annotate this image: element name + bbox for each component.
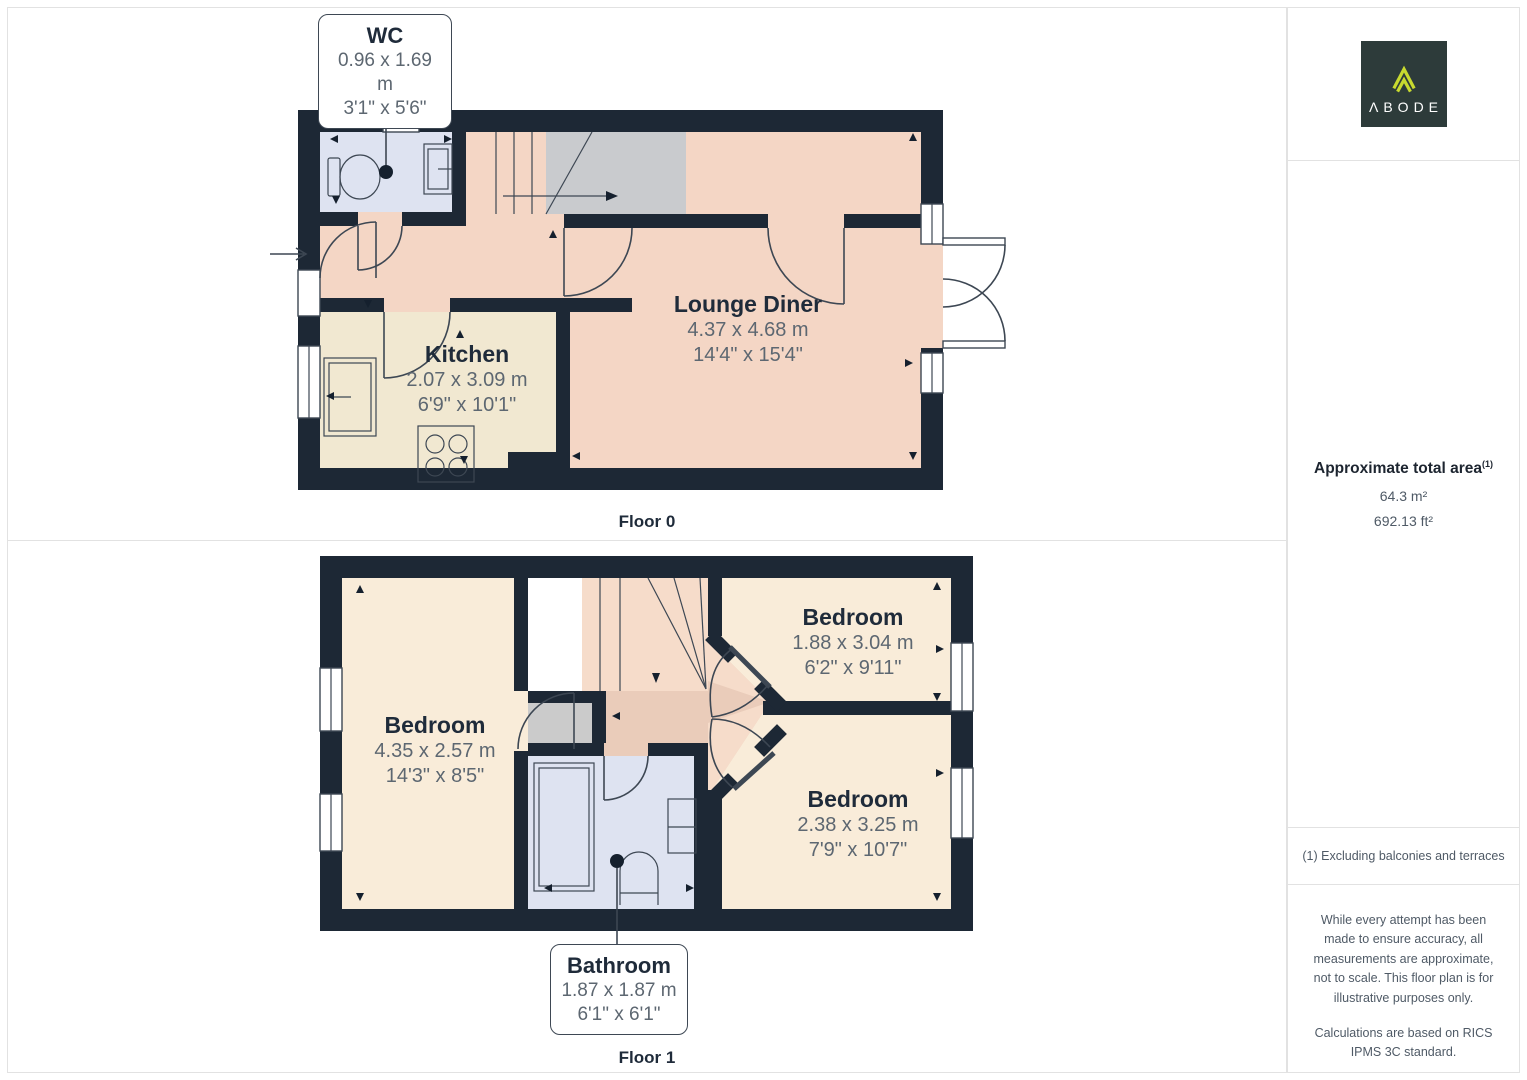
wc-callout: WC 0.96 x 1.69 m 3'1" x 5'6" bbox=[318, 14, 452, 129]
disclaimer-accuracy: While every attempt has been made to ens… bbox=[1304, 911, 1503, 1008]
bathroom-callout-metric: 1.87 x 1.87 m bbox=[561, 979, 677, 1003]
area-m2: 64.3 m² bbox=[1380, 488, 1427, 504]
french-doors bbox=[943, 238, 1005, 348]
area-section: Approximate total area(1) 64.3 m² 692.13… bbox=[1288, 161, 1519, 827]
floorplan-panels: WC 0.96 x 1.69 m 3'1" x 5'6" Kitchen 2.0… bbox=[7, 7, 1287, 1073]
area-title: Approximate total area(1) bbox=[1314, 459, 1493, 478]
wc-callout-name: WC bbox=[329, 22, 441, 49]
floor-0-label: Floor 0 bbox=[8, 512, 1286, 532]
area-footnote-marker: (1) bbox=[1482, 459, 1493, 469]
disclaimer-standard: Calculations are based on RICS IPMS 3C s… bbox=[1304, 1024, 1503, 1063]
floor-1-panel: Bedroom 4.35 x 2.57 m 14'3" x 8'5" Bedro… bbox=[8, 541, 1286, 1074]
floor-0-panel: WC 0.96 x 1.69 m 3'1" x 5'6" Kitchen 2.0… bbox=[8, 8, 1286, 541]
wc-callout-metric: 0.96 x 1.69 m bbox=[329, 49, 441, 97]
logo-section: ΛBODE bbox=[1288, 8, 1519, 161]
kitchen-floor bbox=[320, 312, 556, 468]
info-sidebar: ΛBODE Approximate total area(1) 64.3 m² … bbox=[1287, 7, 1520, 1073]
footnote: (1) Excluding balconies and terraces bbox=[1288, 827, 1519, 885]
stairs-floor-1 bbox=[582, 578, 708, 691]
bathroom-callout-name: Bathroom bbox=[561, 952, 677, 979]
bathroom-callout: Bathroom 1.87 x 1.87 m 6'1" x 6'1" bbox=[550, 944, 688, 1035]
stairs-floor bbox=[546, 132, 686, 214]
floor-1-label: Floor 1 bbox=[8, 1048, 1286, 1068]
abode-logo-text: ΛBODE bbox=[1364, 99, 1443, 115]
disclaimer-section: While every attempt has been made to ens… bbox=[1288, 885, 1519, 1072]
wc-callout-imperial: 3'1" x 5'6" bbox=[329, 97, 441, 121]
area-ft2: 692.13 ft² bbox=[1374, 513, 1433, 529]
stair-void bbox=[528, 578, 582, 691]
bathroom-callout-imperial: 6'1" x 6'1" bbox=[561, 1003, 677, 1027]
abode-logo-icon bbox=[1381, 53, 1427, 97]
floor-0-plan bbox=[8, 8, 1286, 540]
landing-step bbox=[528, 703, 592, 743]
floorplan-page: WC 0.96 x 1.69 m 3'1" x 5'6" Kitchen 2.0… bbox=[0, 0, 1527, 1080]
abode-logo: ΛBODE bbox=[1361, 41, 1447, 127]
